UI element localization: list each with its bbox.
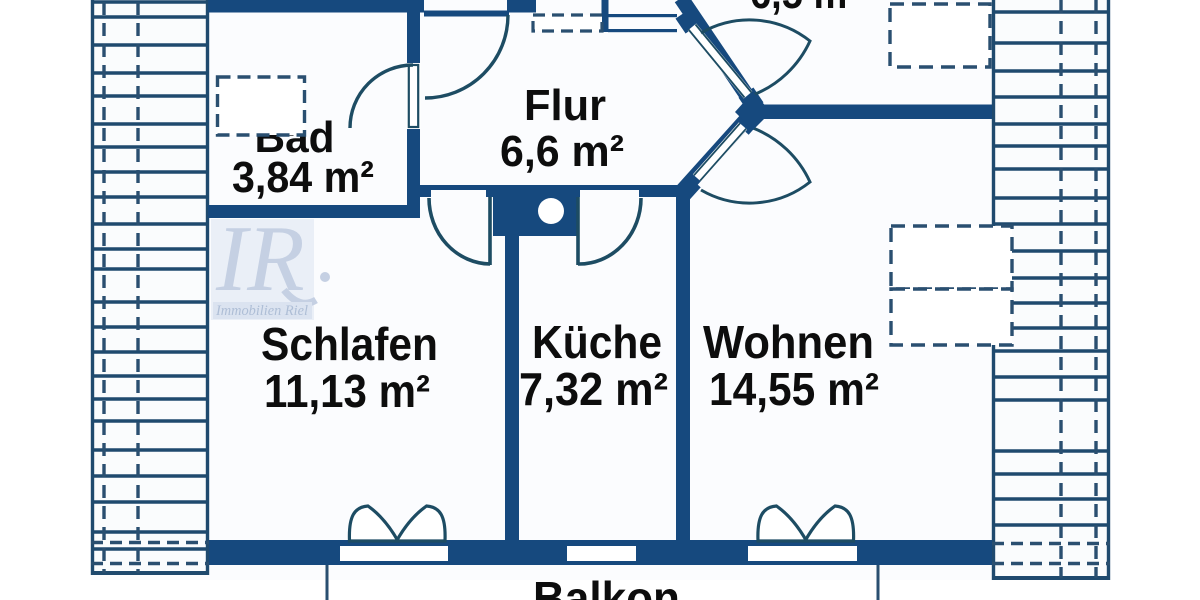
svg-text:Immobilien Riel: Immobilien Riel <box>215 303 308 319</box>
svg-text:Wohnen: Wohnen <box>703 316 874 368</box>
svg-text:Schlafen: Schlafen <box>261 318 438 370</box>
svg-text:6,6 m²: 6,6 m² <box>500 127 624 176</box>
svg-text:3,84 m²: 3,84 m² <box>232 153 374 202</box>
svg-text:Balkon: Balkon <box>533 572 680 600</box>
svg-text:Flur: Flur <box>524 81 606 130</box>
svg-text:7,32 m²: 7,32 m² <box>519 363 668 415</box>
svg-text:6,5 m²: 6,5 m² <box>750 0 860 18</box>
svg-text:14,55 m²: 14,55 m² <box>709 363 879 415</box>
svg-text:11,13 m²: 11,13 m² <box>264 365 430 417</box>
svg-text:Küche: Küche <box>532 316 662 368</box>
